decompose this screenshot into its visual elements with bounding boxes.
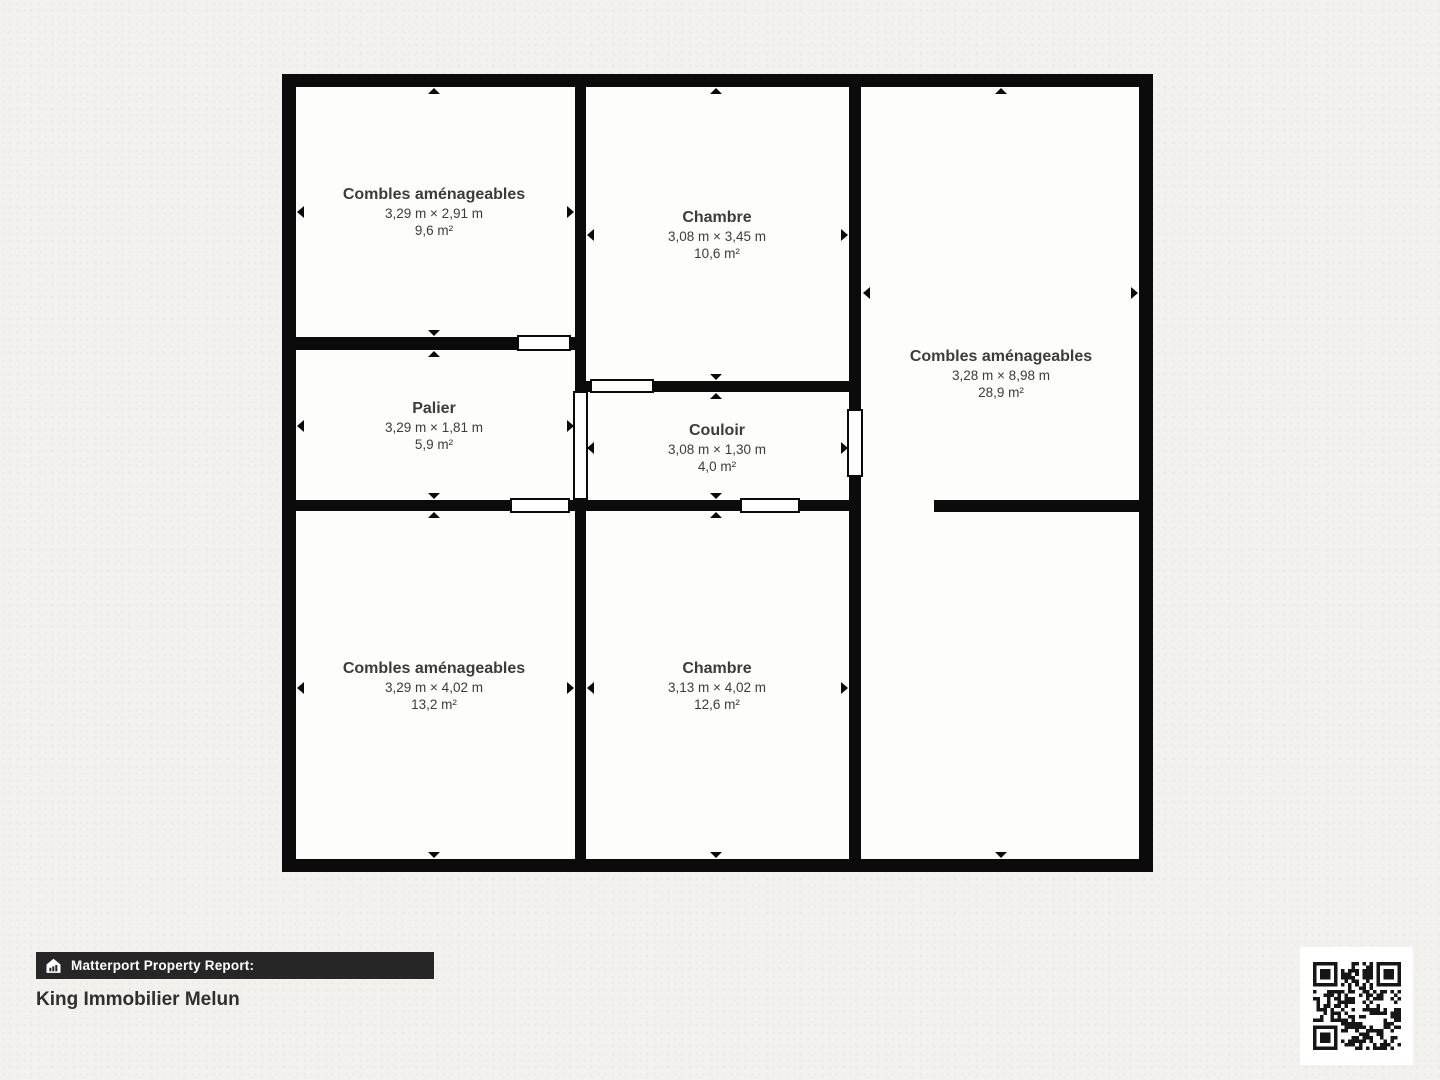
wall-vertical-left-column-upper: [575, 87, 586, 392]
measure-arrow-left: [297, 206, 304, 218]
door-opening-combles-top: [517, 335, 571, 351]
wall-outer-right: [1139, 74, 1153, 872]
measure-arrow-down: [428, 852, 440, 858]
room-area: 9,6 m²: [343, 222, 525, 239]
room-name: Palier: [385, 399, 483, 419]
door-opening-couloir-bottom: [740, 498, 800, 513]
room-label-combles-bottom-left: Combles aménageables 3,29 m × 4,02 m 13,…: [343, 659, 525, 713]
property-report-page: Combles aménageables 3,29 m × 2,91 m 9,6…: [0, 0, 1440, 1080]
room-name: Chambre: [668, 659, 766, 679]
door-opening-palier-bottom: [510, 498, 570, 513]
room-label-palier: Palier 3,29 m × 1,81 m 5,9 m²: [385, 399, 483, 453]
wall-vertical-right-column-lower: [849, 476, 861, 859]
matterport-house-icon: [45, 957, 62, 974]
room-area: 13,2 m²: [343, 696, 525, 713]
measure-arrow-down: [710, 493, 722, 499]
wall-vertical-left-column-lower: [575, 499, 586, 859]
measure-arrow-up: [428, 512, 440, 518]
wall-outer-bottom: [282, 859, 1153, 872]
room-area: 4,0 m²: [668, 458, 766, 475]
room-dimensions: 3,28 m × 8,98 m: [910, 367, 1092, 384]
wall-outer-left: [282, 74, 296, 872]
measure-arrow-up: [428, 351, 440, 357]
room-dimensions: 3,29 m × 1,81 m: [385, 419, 483, 436]
door-opening-couloir-right: [847, 409, 863, 477]
door-opening-palier-couloir: [573, 391, 588, 500]
room-name: Combles aménageables: [343, 185, 525, 205]
room-area: 12,6 m²: [668, 696, 766, 713]
room-name: Combles aménageables: [910, 347, 1092, 367]
measure-arrow-right: [567, 420, 574, 432]
measure-arrow-right: [567, 206, 574, 218]
measure-arrow-down: [995, 852, 1007, 858]
measure-arrow-up: [710, 512, 722, 518]
wall-vertical-right-column-upper: [849, 87, 861, 410]
door-opening-chambre-top: [590, 379, 654, 393]
measure-arrow-right: [1131, 287, 1138, 299]
room-dimensions: 3,29 m × 4,02 m: [343, 679, 525, 696]
room-area: 28,9 m²: [910, 384, 1092, 401]
measure-arrow-right: [841, 442, 848, 454]
qr-code: [1300, 947, 1413, 1065]
report-title-label: Matterport Property Report:: [71, 958, 254, 973]
room-name: Couloir: [668, 421, 766, 441]
room-dimensions: 3,13 m × 4,02 m: [668, 679, 766, 696]
room-label-chambre-top: Chambre 3,08 m × 3,45 m 10,6 m²: [668, 208, 766, 262]
measure-arrow-right: [567, 682, 574, 694]
room-label-combles-top-left: Combles aménageables 3,29 m × 2,91 m 9,6…: [343, 185, 525, 239]
room-dimensions: 3,08 m × 1,30 m: [668, 441, 766, 458]
room-label-chambre-bottom: Chambre 3,13 m × 4,02 m 12,6 m²: [668, 659, 766, 713]
measure-arrow-left: [863, 287, 870, 299]
measure-arrow-up: [428, 88, 440, 94]
measure-arrow-down: [710, 374, 722, 380]
measure-arrow-left: [587, 229, 594, 241]
measure-arrow-left: [587, 442, 594, 454]
client-name: King Immobilier Melun: [36, 989, 240, 1011]
measure-arrow-left: [297, 682, 304, 694]
report-title-bar: Matterport Property Report:: [36, 952, 434, 979]
measure-arrow-right: [841, 229, 848, 241]
room-dimensions: 3,29 m × 2,91 m: [343, 205, 525, 222]
measure-arrow-up: [710, 393, 722, 399]
measure-arrow-down: [428, 493, 440, 499]
measure-arrow-down: [428, 330, 440, 336]
room-area: 5,9 m²: [385, 436, 483, 453]
measure-arrow-down: [710, 852, 722, 858]
measure-arrow-right: [841, 682, 848, 694]
measure-arrow-left: [587, 682, 594, 694]
room-label-couloir: Couloir 3,08 m × 1,30 m 4,0 m²: [668, 421, 766, 475]
wall-outer-top: [282, 74, 1153, 87]
measure-arrow-up: [710, 88, 722, 94]
measure-arrow-up: [995, 88, 1007, 94]
room-label-combles-right: Combles aménageables 3,28 m × 8,98 m 28,…: [910, 347, 1092, 401]
room-name: Combles aménageables: [343, 659, 525, 679]
room-area: 10,6 m²: [668, 245, 766, 262]
room-name: Chambre: [668, 208, 766, 228]
room-dimensions: 3,08 m × 3,45 m: [668, 228, 766, 245]
measure-arrow-left: [297, 420, 304, 432]
wall-stub-right-room: [934, 500, 1140, 512]
